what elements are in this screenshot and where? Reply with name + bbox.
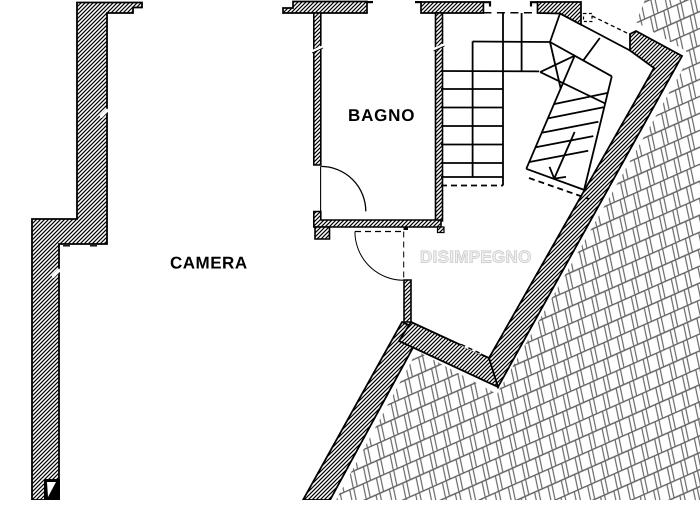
svg-text:DISIMPEGNO: DISIMPEGNO [420,248,532,267]
svg-text:CAMERA: CAMERA [170,254,248,273]
svg-text:BAGNO: BAGNO [348,106,415,125]
